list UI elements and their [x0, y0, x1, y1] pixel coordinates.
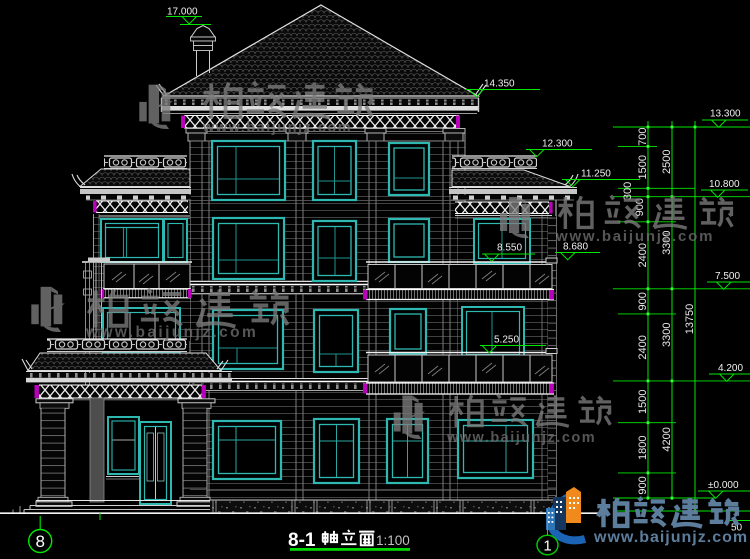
svg-text:www.baijunjz.com: www.baijunjz.com	[202, 120, 352, 136]
svg-text:10.800: 10.800	[709, 179, 740, 190]
svg-text:8: 8	[35, 532, 44, 551]
svg-text:5.250: 5.250	[494, 335, 519, 346]
svg-text:www.baijunjz.com: www.baijunjz.com	[85, 324, 258, 341]
svg-text:300: 300	[622, 182, 634, 200]
svg-text:1500: 1500	[637, 390, 649, 414]
svg-text:www.baijunjz.com: www.baijunjz.com	[593, 529, 748, 546]
svg-text:11.250: 11.250	[581, 169, 611, 180]
svg-text:8.550: 8.550	[497, 243, 522, 254]
svg-text:13.300: 13.300	[710, 109, 741, 120]
svg-text:4.200: 4.200	[718, 363, 743, 374]
svg-text:12.300: 12.300	[542, 139, 573, 150]
svg-text:900: 900	[637, 292, 649, 310]
svg-text:www.baijunjz.com: www.baijunjz.com	[555, 228, 714, 245]
svg-text:900: 900	[637, 476, 649, 494]
svg-text:2400: 2400	[637, 335, 649, 359]
svg-text:1800: 1800	[637, 436, 649, 460]
svg-text:1: 1	[543, 538, 551, 555]
svg-text:7.500: 7.500	[715, 271, 740, 282]
svg-text:14.350: 14.350	[484, 79, 515, 90]
svg-text:2500: 2500	[661, 150, 673, 174]
svg-text:±0.000: ±0.000	[708, 480, 739, 491]
svg-text:1500: 1500	[637, 155, 649, 179]
svg-text:3300: 3300	[661, 323, 673, 347]
svg-text:8-1: 8-1	[288, 530, 316, 551]
svg-text:13750: 13750	[684, 304, 696, 335]
svg-text:4200: 4200	[661, 427, 673, 451]
svg-text:1:100: 1:100	[376, 533, 410, 548]
svg-text:www.baijunjz.com: www.baijunjz.com	[446, 430, 596, 446]
svg-text:700: 700	[637, 128, 649, 146]
svg-text:2400: 2400	[637, 243, 649, 267]
svg-text:17.000: 17.000	[167, 7, 198, 18]
